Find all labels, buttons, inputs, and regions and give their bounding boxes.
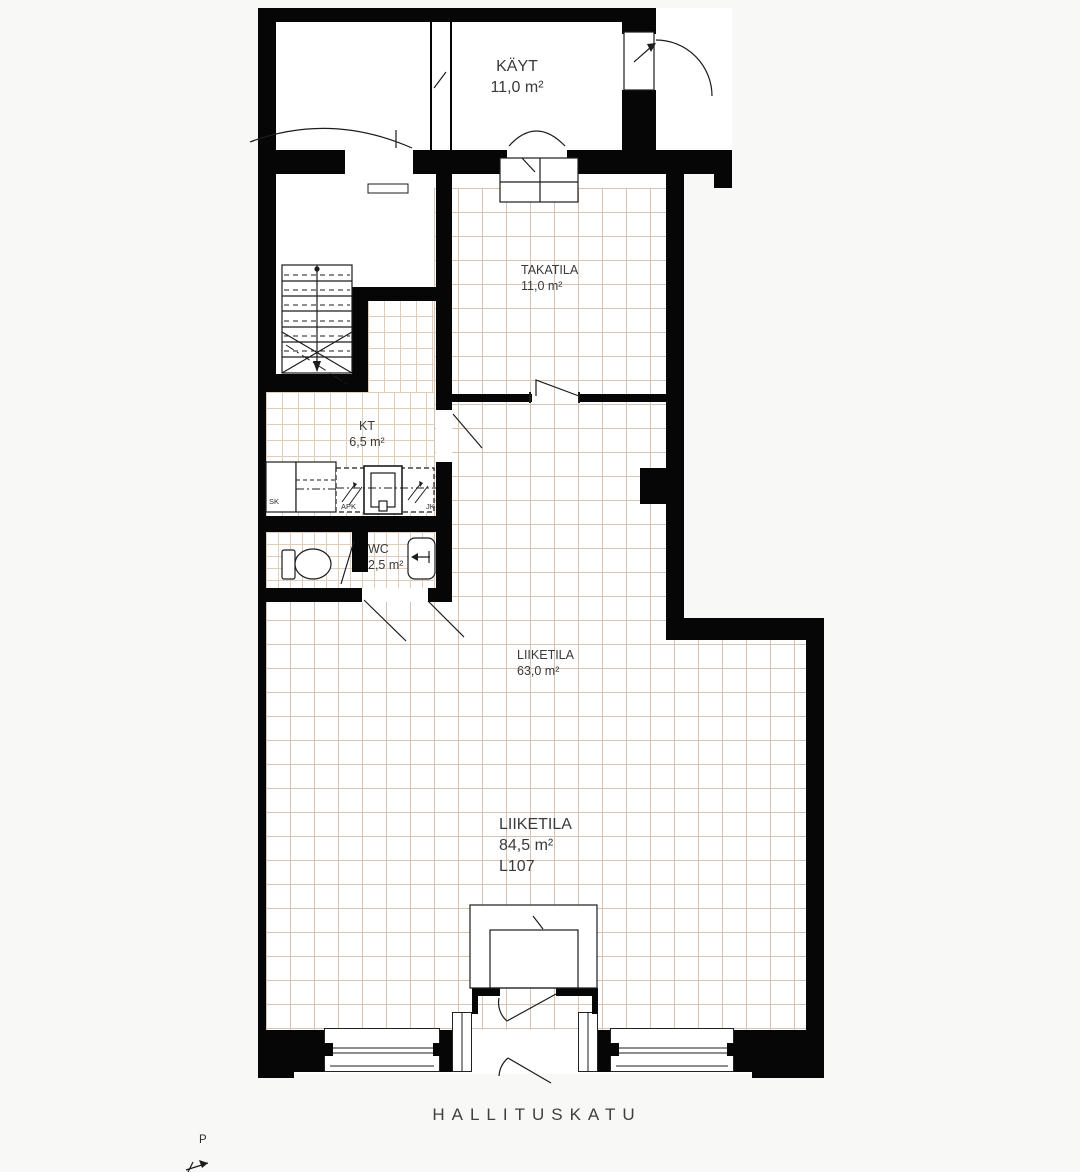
north-arrow-icon xyxy=(186,1160,208,1172)
room-label-takatila: TAKATILA 11,0 m² xyxy=(521,262,578,294)
room-name: KÄYT xyxy=(432,56,602,77)
room-unit-code: L107 xyxy=(499,856,572,877)
wall-corner-bottom-left xyxy=(258,1030,324,1072)
wall-entry-jamb-right xyxy=(592,996,598,1014)
wall-ktwc-right-lower xyxy=(436,462,452,602)
wall-takatila-divider-a xyxy=(452,394,532,402)
wall-corner-bottom-left-step xyxy=(258,1072,294,1078)
wall-left-main xyxy=(258,392,266,1032)
room-area: 2,5 m² xyxy=(368,557,403,573)
entry-side-frame-right xyxy=(578,1012,598,1072)
room-label-kayt: KÄYT 11,0 m² xyxy=(432,56,602,98)
wall-kt-wc-divider xyxy=(258,516,436,532)
wall-stub-right xyxy=(714,174,732,188)
door-opening-takatila xyxy=(507,150,567,174)
fixture-label-jk: JK xyxy=(426,502,435,512)
room-label-liiketila-main: LIIKETILA 84,5 m² L107 xyxy=(499,814,572,877)
wall-pillar xyxy=(640,468,666,504)
room-label-liiketila-back: LIIKETILA 63,0 m² xyxy=(517,647,574,679)
room-label-wc: WC 2,5 m² xyxy=(368,541,403,573)
room-area: 11,0 m² xyxy=(521,278,578,294)
room-area: 11,0 m² xyxy=(432,77,602,98)
wall-entry-inner-left xyxy=(472,988,500,996)
room-area: 6,5 m² xyxy=(322,434,412,450)
floor-tiles-wc xyxy=(266,532,434,588)
wall-corner-bottom-right-step xyxy=(752,1072,824,1078)
wall-left-upper xyxy=(258,8,276,392)
storefront-window-right xyxy=(610,1028,734,1072)
door-opening-left-room xyxy=(345,150,413,174)
wall-takatila-divider-b xyxy=(580,394,668,402)
wall-wc-stub xyxy=(352,532,368,572)
wall-right-upper xyxy=(666,174,684,620)
fixture-label-sk: SK xyxy=(269,497,279,507)
room-name: KT xyxy=(322,418,412,434)
street-name: HALLITUSKATU xyxy=(287,1104,787,1126)
room-label-kt: KT 6,5 m² xyxy=(322,418,412,450)
door-opening-kt xyxy=(436,410,452,462)
wall-widening xyxy=(666,618,824,640)
room-name: WC xyxy=(368,541,403,557)
room-name: LIIKETILA xyxy=(517,647,574,663)
wall-kayt-right-b xyxy=(622,90,656,152)
exterior-right-zone xyxy=(684,174,806,620)
wall-mullion-left xyxy=(440,1030,452,1072)
wall-entry-jamb-left xyxy=(472,996,478,1014)
wall-stair-bottom xyxy=(258,374,368,392)
floor-plan: KÄYT 11,0 m² TAKATILA 11,0 m² KT 6,5 m² … xyxy=(0,0,1080,1172)
room-name: TAKATILA xyxy=(521,262,578,278)
wall-right-main xyxy=(806,640,824,1032)
room-area: 84,5 m² xyxy=(499,835,572,856)
floor-tiles-kt-strip xyxy=(368,300,434,392)
wall-corner-bottom-right xyxy=(734,1030,824,1072)
wall-entry-inner-right xyxy=(556,988,598,996)
fixture-label-apk: APK xyxy=(341,502,356,512)
floor-tiles-kt xyxy=(266,392,434,516)
north-marker-label: P xyxy=(199,1133,207,1148)
wall-mullion-right xyxy=(598,1030,610,1072)
entry-side-frame-left xyxy=(452,1012,472,1072)
wall-corridor-bottom xyxy=(258,150,732,174)
storefront-window-left xyxy=(324,1028,440,1072)
room-area: 63,0 m² xyxy=(517,663,574,679)
room-name: LIIKETILA xyxy=(499,814,572,835)
door-opening-wc xyxy=(362,588,428,602)
wall-kayt-right-a xyxy=(622,8,656,34)
wall-top xyxy=(258,8,656,22)
